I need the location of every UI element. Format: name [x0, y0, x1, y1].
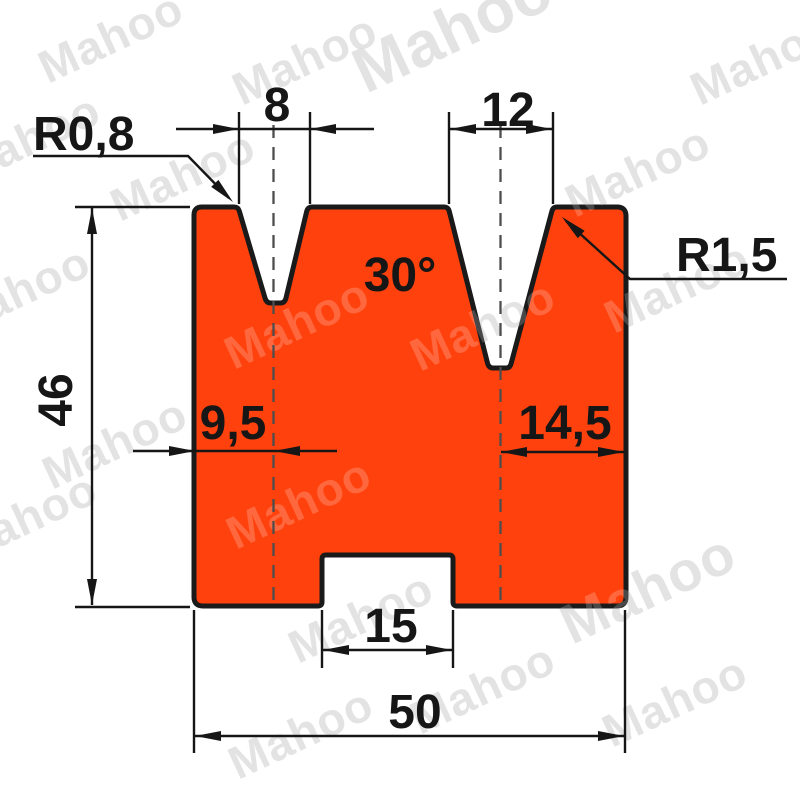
watermark-text: Mahoo [0, 235, 98, 347]
watermark-text: Mahoo [682, 3, 800, 115]
watermark-text: Mahoo [220, 677, 381, 789]
technical-drawing-canvas: Mahoo Mahoo Mahoo Mahoo Mahoo Mahoo Maho… [0, 0, 800, 800]
label-slot-width: 15 [364, 600, 417, 653]
label-height: 46 [30, 373, 83, 426]
watermark-text: Mahoo [557, 115, 718, 227]
label-left-v-offset: 9,5 [200, 397, 267, 450]
label-left-v-width: 8 [264, 79, 291, 132]
die-drawing: Mahoo Mahoo Mahoo Mahoo Mahoo Mahoo Maho… [0, 0, 800, 800]
watermark-text: Mahoo [0, 462, 105, 574]
label-angle: 30° [364, 249, 437, 302]
label-radius-left: R0,8 [33, 108, 134, 161]
label-radius-right: R1,5 [676, 229, 777, 282]
watermark-text: Mahoo [30, 0, 191, 93]
watermark-text: Mahoo [594, 645, 755, 757]
label-right-v-offset: 14,5 [518, 397, 611, 450]
label-total-width: 50 [388, 686, 441, 739]
label-right-v-width: 12 [481, 84, 534, 137]
